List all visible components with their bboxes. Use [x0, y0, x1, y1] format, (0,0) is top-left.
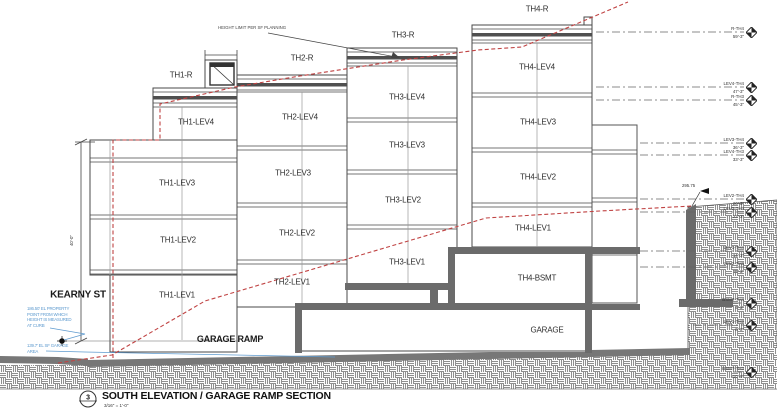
level-marker: LEV1-TH414'-3": [682, 245, 744, 258]
level-marker: LEV4-TH333'-3": [682, 149, 744, 162]
level-marker-name: LEV1-TH4: [682, 245, 744, 250]
datum-icon: [746, 27, 757, 38]
level-marker-name: BSMT-TH4: [682, 297, 744, 302]
garage-area-note-line: 139.7' EL SF GARAGE: [27, 343, 68, 349]
level-marker-elevation: 14'-3": [682, 253, 744, 258]
level-marker: LEV4-TH447'-3": [682, 81, 744, 94]
datum-icon: [746, 262, 757, 273]
datum-icon: [746, 320, 757, 331]
datum-icon: [746, 298, 757, 309]
drawing-scale: 3/16" = 1'-0": [104, 403, 128, 408]
height-limit-leader: [268, 33, 400, 58]
level-marker: LEV3-TH323'-3": [682, 206, 744, 219]
detail-number: 3: [86, 395, 90, 402]
level-marker-elevation: 11'-3": [682, 269, 744, 274]
level-marker-elevation: 0'-0": [682, 327, 744, 332]
curb-note-line: 186.50' EL PROPERTY: [27, 306, 71, 312]
label-th2-lev4: TH2-LEV4: [282, 113, 318, 122]
label-th3-lev2: TH3-LEV2: [385, 196, 421, 205]
datum-icon: [746, 246, 757, 257]
datum-icon: [746, 367, 757, 378]
label-garage: GARAGE: [530, 326, 563, 335]
drawing-title: SOUTH ELEVATION / GARAGE RAMP SECTION: [102, 390, 331, 402]
label-garage-ramp: GARAGE RAMP: [197, 334, 263, 344]
label-th4-lev4: TH4-LEV4: [519, 63, 555, 72]
datum-icon: [746, 138, 757, 149]
label-th4-lev3: TH4-LEV3: [520, 118, 556, 127]
level-marker-elevation: -10'-9": [682, 374, 744, 379]
datum-icon: [746, 207, 757, 218]
level-marker-name: LEV3-TH4: [682, 137, 744, 142]
garage-area-note: 139.7' EL SF GARAGE AREA: [27, 343, 68, 354]
level-marker-elevation: 47'-3": [682, 89, 744, 94]
level-marker: LEV2-TH426'-3": [682, 193, 744, 206]
label-th2-lev1: TH2-LEV1: [274, 278, 310, 287]
level-marker-elevation: 59'-3": [682, 34, 744, 39]
datum-icon: [746, 150, 757, 161]
label-th2-lev2: TH2-LEV2: [279, 229, 315, 238]
label-th3-lev3: TH3-LEV3: [389, 141, 425, 150]
label-th3-lev1: TH3-LEV1: [389, 258, 425, 267]
level-marker-name: LEV2-TH4: [682, 193, 744, 198]
level-marker-name: LEV2-TH3: [682, 261, 744, 266]
level-marker-name: R-TH3: [682, 94, 744, 99]
datum-icon: [746, 82, 757, 93]
level-marker-name: R-TH4: [682, 26, 744, 31]
curb-note-line: AT CURB: [27, 323, 71, 329]
label-th3-lev4: TH3-LEV4: [389, 93, 425, 102]
label-kearny-st: KEARNY ST: [50, 290, 106, 301]
label-th1-lev3: TH1-LEV3: [159, 179, 195, 188]
level-marker-elevation: 33'-3": [682, 157, 744, 162]
level-marker-name: BSMT-TH3: [682, 366, 744, 371]
level-marker: LEV1-TH30'-0": [682, 319, 744, 332]
label-th4-roof: TH4-R: [526, 5, 549, 14]
level-marker-elevation: 45'-3": [682, 102, 744, 107]
curb-note-line: HEIGHT IS MEASURED: [27, 317, 71, 323]
elevation-linework: [0, 0, 777, 412]
level-marker-elevation: 26'-3": [682, 201, 744, 206]
level-marker-name: LEV4-TH4: [682, 81, 744, 86]
garage-area-note-line: AREA: [27, 349, 68, 355]
level-marker-name: LEV1-TH3: [682, 319, 744, 324]
level-marker-elevation: 4'-3": [682, 305, 744, 310]
datum-icon: [746, 95, 757, 106]
level-marker: LEV2-TH311'-3": [682, 261, 744, 274]
label-th1-lev2: TH1-LEV2: [160, 236, 196, 245]
street-height-dimension: 40'-0": [69, 235, 74, 246]
label-th2-lev3: TH2-LEV3: [275, 169, 311, 178]
datum-icon: [746, 194, 757, 205]
level-marker-elevation: 23'-3": [682, 214, 744, 219]
level-marker: R-TH459'-3": [682, 26, 744, 39]
level-marker: BSMT-TH3-10'-9": [682, 366, 744, 379]
label-th1-roof: TH1-R: [170, 71, 193, 80]
label-th1-lev4: TH1-LEV4: [178, 118, 214, 127]
label-th4-lev1: TH4-LEV1: [515, 224, 551, 233]
level-marker: R-TH345'-3": [682, 94, 744, 107]
level-marker: BSMT-TH44'-3": [682, 297, 744, 310]
label-th1-lev1: TH1-LEV1: [159, 291, 195, 300]
level-marker-name: LEV4-TH3: [682, 149, 744, 154]
label-th4-lev2: TH4-LEV2: [520, 173, 556, 182]
level-marker: LEV3-TH436'-3": [682, 137, 744, 150]
label-th2-roof: TH2-R: [291, 54, 314, 63]
level-marker-name: LEV3-TH3: [682, 206, 744, 211]
label-th4-bsmt: TH4-BSMT: [518, 274, 556, 283]
elevation-drawing-sheet: TH1-R TH1-LEV4 TH1-LEV3 TH1-LEV2 TH1-LEV…: [0, 0, 777, 412]
height-limit-note: HEIGHT LIMIT PER SF PLANNING: [218, 25, 286, 30]
label-th3-roof: TH3-R: [392, 31, 415, 40]
curb-height-note: 186.50' EL PROPERTY POINT FROM WHICH HEI…: [27, 306, 71, 328]
wall-spot-elevation-value: 295.75: [682, 183, 695, 188]
